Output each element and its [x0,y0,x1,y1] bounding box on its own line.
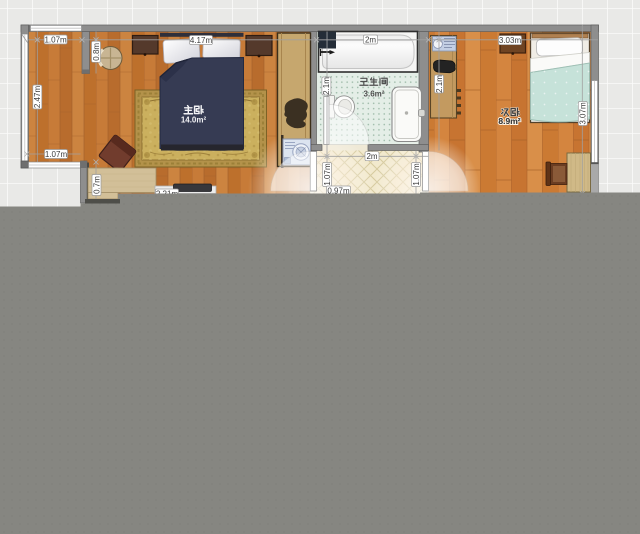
svg-text:2m: 2m [366,152,377,161]
svg-text:3.07m: 3.07m [579,102,588,125]
svg-text:1.07m: 1.07m [323,163,332,186]
svg-text:2.47m: 2.47m [33,86,42,109]
svg-text:2.1m: 2.1m [322,77,331,95]
svg-text:0.8m: 0.8m [92,43,101,61]
svg-text:3.6m²: 3.6m² [364,90,385,99]
svg-text:8.9m²: 8.9m² [498,116,520,126]
svg-text:14.0m²: 14.0m² [181,116,207,125]
svg-text:2.1m: 2.1m [435,75,444,93]
svg-text:3.03m: 3.03m [499,36,522,45]
svg-text:1.07m: 1.07m [45,150,68,159]
svg-text:2m: 2m [365,35,376,44]
svg-text:4.17m: 4.17m [190,36,213,45]
svg-text:0.7m: 0.7m [92,176,101,194]
svg-text:1.07m: 1.07m [44,35,67,44]
svg-text:1.07m: 1.07m [412,163,421,186]
